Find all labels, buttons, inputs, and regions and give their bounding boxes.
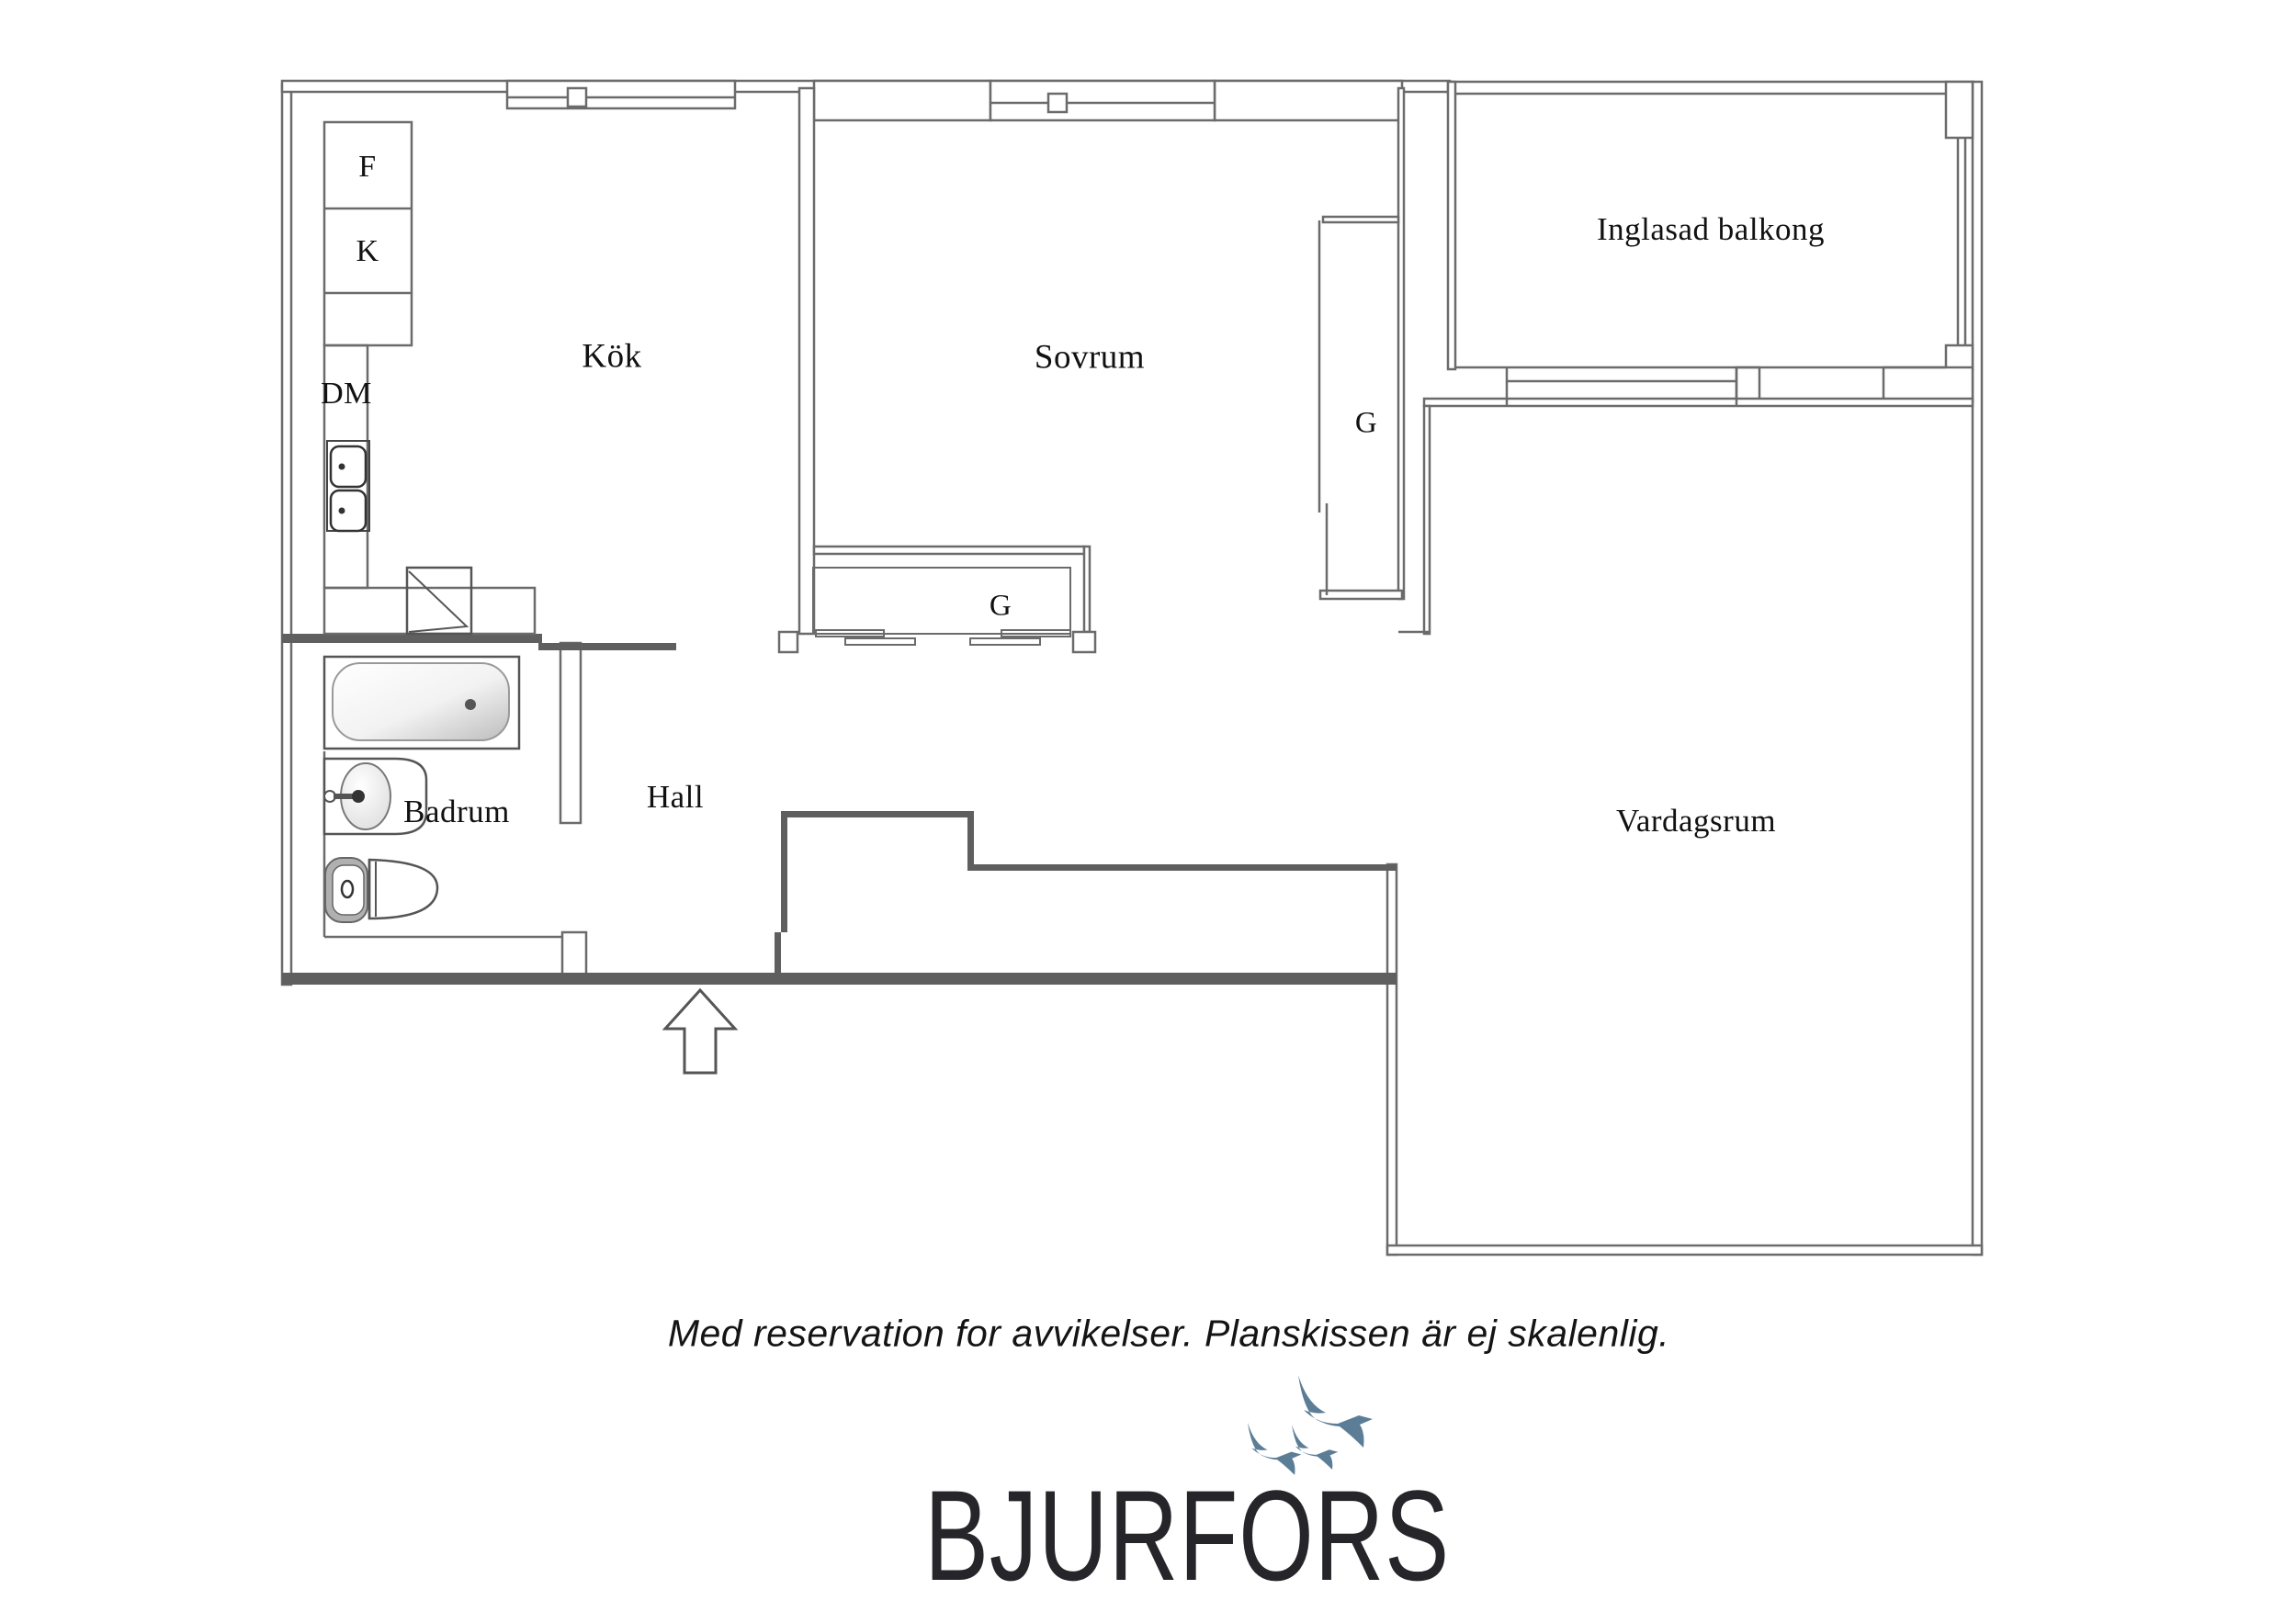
walls-outline (282, 81, 1982, 1255)
vardagsrum-wall-block (1883, 367, 1973, 401)
floorplan-drawing (0, 0, 2296, 1623)
room-label-g-wardrobe: G (990, 590, 1012, 624)
vardagsrum-wall-left-upper (1424, 406, 1430, 634)
balcony-wall-top (1448, 82, 1973, 94)
balcony-wall-left (1448, 82, 1455, 369)
kitchen-counter-row (324, 588, 535, 634)
kitchen-wall-threshold (538, 643, 676, 650)
room-label-badrum: Badrum (403, 794, 510, 830)
closet-wall-right (1398, 88, 1404, 599)
kitchen-wall-bottom (282, 634, 542, 643)
stove-icon (407, 568, 471, 634)
badrum-wall-right (560, 643, 581, 823)
room-label-g-closet: G (1355, 407, 1377, 441)
sovrum-wall-left (799, 88, 814, 634)
wardrobe-sliding-door (845, 638, 915, 645)
entrance-arrow-icon (665, 990, 735, 1073)
room-label-hall: Hall (647, 779, 704, 816)
bathroom-fixtures (324, 657, 519, 922)
room-label-vardagsrum: Vardagsrum (1616, 803, 1776, 840)
wardrobe-sliding-door (970, 638, 1040, 645)
hall-step-wall-v1b (775, 932, 781, 975)
wall-right (1973, 82, 1982, 1255)
kok-window-icon (507, 81, 735, 108)
wall-left (282, 85, 291, 985)
wardrobe-box (813, 568, 1070, 634)
room-label-k: K (356, 234, 379, 269)
hall-step-wall-top (781, 811, 967, 817)
hall-step-wall-v1 (781, 811, 787, 932)
wall-bottom (282, 973, 1397, 985)
disclaimer-text: Med reservation for avvikelser. Planskis… (668, 1313, 1669, 1356)
room-label-kok: Kök (582, 337, 641, 377)
balcony-window-top-block (1946, 82, 1973, 138)
room-label-balcony: Inglasad balkong (1597, 211, 1825, 248)
vardagsrum-wall-left-lower (1387, 864, 1397, 1255)
toilet-icon (325, 858, 437, 922)
floorplan-page: F K DM Kök Sovrum G G Inglasad balkong H… (0, 0, 2296, 1623)
bathtub-icon (324, 657, 519, 749)
sovrum-door-jamb (1084, 547, 1090, 632)
closet-cap-top (1323, 217, 1398, 222)
room-label-dm: DM (321, 377, 372, 411)
wardrobe-jamb-right (1073, 632, 1095, 652)
wardrobe-g (813, 568, 1070, 645)
wall-top-sovrum-right (1215, 81, 1402, 120)
balcony-side-window-icon (1958, 138, 1965, 345)
wardrobe-jamb-left (779, 632, 797, 652)
hall-step-wall-bottom (967, 864, 1397, 871)
vardagsrum-window-pier (1736, 367, 1759, 401)
room-label-f: F (358, 150, 376, 185)
room-label-sovrum: Sovrum (1035, 338, 1145, 378)
hall-step-wall-v2 (967, 811, 974, 864)
entrance-door-jamb (562, 932, 586, 975)
closet-cap-bottom (1320, 591, 1402, 599)
sovrum-wall-bottom (814, 547, 1084, 554)
wall-top-sovrum-left (814, 81, 990, 120)
brand-logo-text: BJURFORS (924, 1461, 1450, 1610)
vardagsrum-wall-bottom (1387, 1245, 1982, 1255)
sovrum-window-icon (990, 81, 1215, 120)
birds-logo-icon (1248, 1375, 1373, 1475)
kitchen-sink-icon (327, 441, 369, 531)
